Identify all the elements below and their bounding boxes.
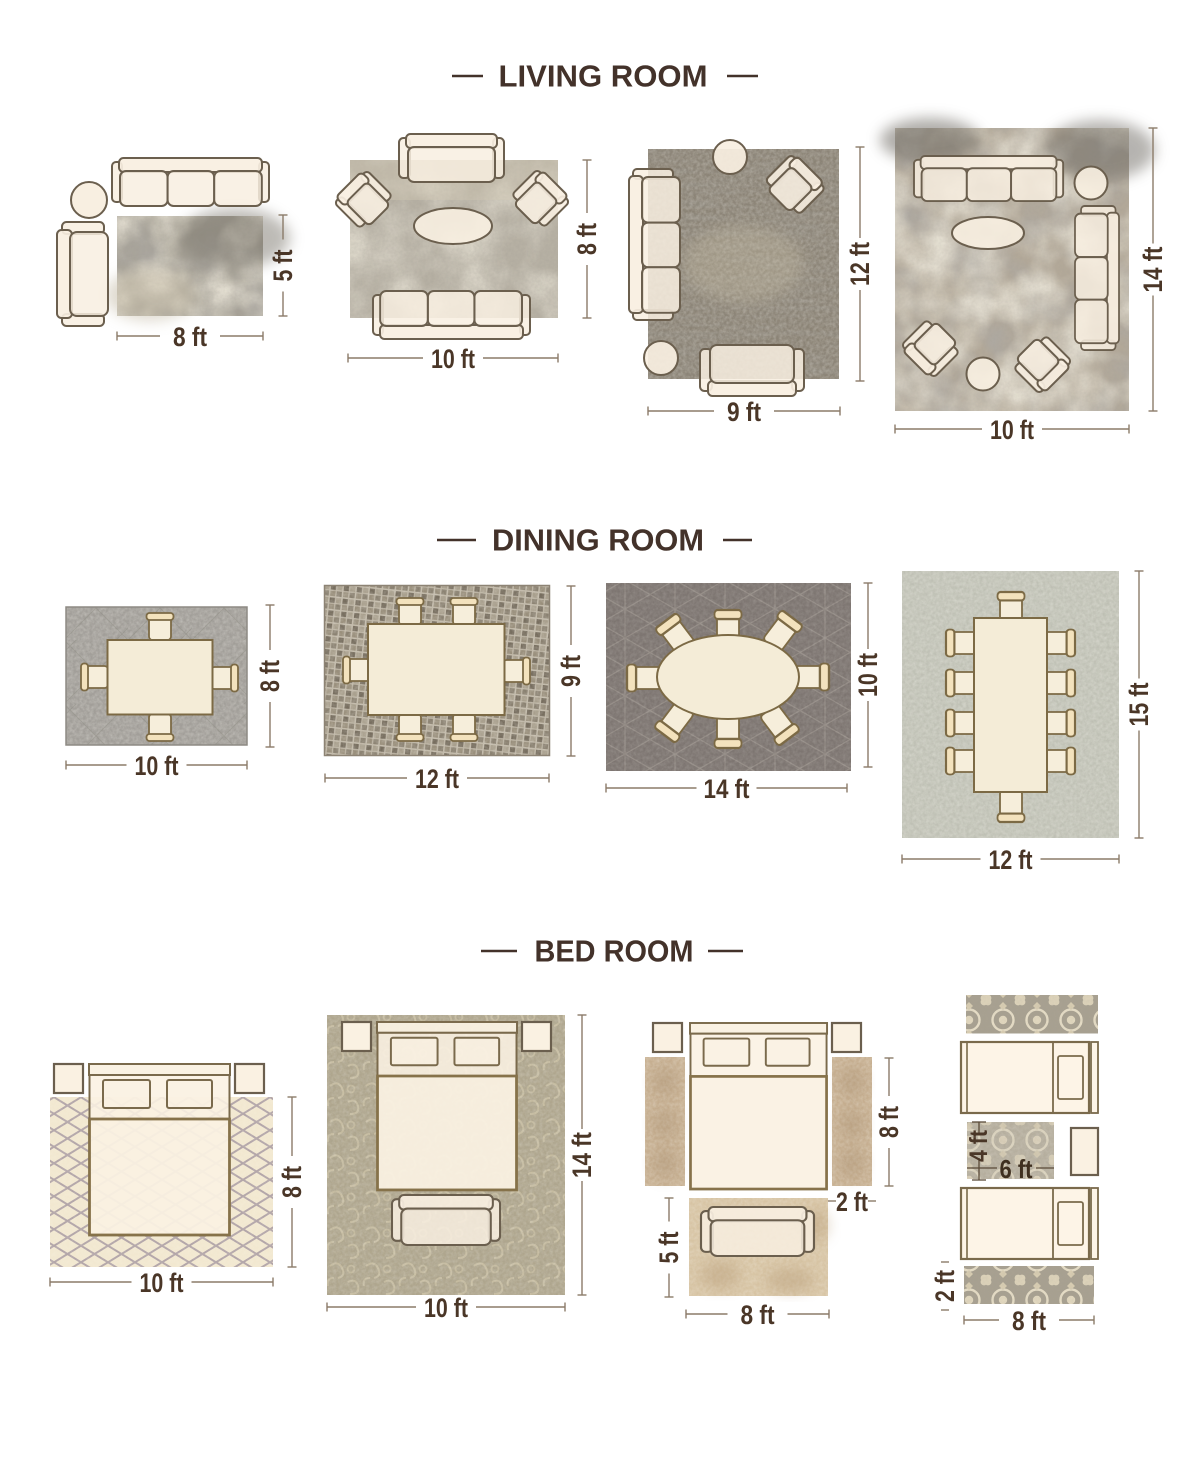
svg-text:10 ft: 10 ft [431, 344, 475, 374]
svg-text:8 ft: 8 ft [1012, 1306, 1046, 1336]
svg-text:14 ft: 14 ft [567, 1132, 597, 1178]
svg-text:BED ROOM: BED ROOM [535, 934, 694, 969]
svg-text:8 ft: 8 ft [277, 1166, 307, 1198]
svg-text:8 ft: 8 ft [255, 660, 285, 692]
svg-text:12 ft: 12 ft [845, 242, 875, 286]
svg-text:8 ft: 8 ft [874, 1106, 904, 1138]
svg-text:9 ft: 9 ft [556, 655, 586, 687]
svg-text:DINING ROOM: DINING ROOM [492, 523, 704, 558]
svg-text:14 ft: 14 ft [704, 774, 750, 804]
svg-text:5 ft: 5 ft [268, 249, 298, 281]
svg-text:5 ft: 5 ft [654, 1231, 684, 1263]
svg-text:10 ft: 10 ft [140, 1268, 184, 1298]
svg-text:4 ft: 4 ft [965, 1129, 993, 1162]
svg-text:8 ft: 8 ft [572, 223, 602, 255]
svg-text:9 ft: 9 ft [727, 397, 761, 427]
svg-text:2 ft: 2 ft [836, 1187, 868, 1217]
svg-text:12 ft: 12 ft [415, 764, 459, 794]
svg-text:8 ft: 8 ft [173, 322, 207, 352]
svg-text:10 ft: 10 ft [135, 751, 179, 781]
svg-text:10 ft: 10 ft [424, 1293, 468, 1323]
svg-text:10 ft: 10 ft [853, 653, 883, 697]
svg-text:8 ft: 8 ft [741, 1300, 775, 1330]
svg-text:10 ft: 10 ft [990, 415, 1034, 445]
svg-text:15 ft: 15 ft [1124, 683, 1154, 727]
svg-text:14 ft: 14 ft [1138, 247, 1168, 293]
svg-text:2 ft: 2 ft [930, 1270, 960, 1302]
svg-text:6 ft: 6 ft [1000, 1154, 1033, 1184]
svg-text:12 ft: 12 ft [989, 845, 1033, 875]
svg-text:LIVING ROOM: LIVING ROOM [499, 59, 708, 94]
